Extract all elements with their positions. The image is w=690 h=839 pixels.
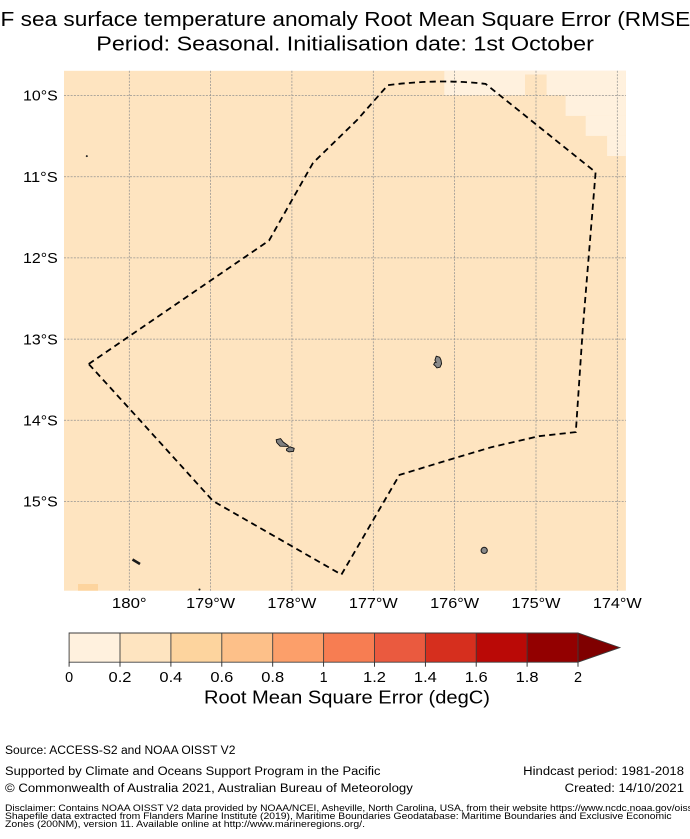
svg-text:© Commonwealth of Australia 20: © Commonwealth of Australia 2021, Austra… (5, 783, 413, 795)
svg-text:175°W: 175°W (512, 596, 561, 612)
svg-text:180°: 180° (112, 596, 147, 612)
svg-text:0.4: 0.4 (159, 670, 182, 686)
svg-text:1: 1 (320, 670, 328, 686)
svg-text:13°S: 13°S (23, 332, 58, 348)
svg-text:Zones (200NM), version 11. Ava: Zones (200NM), version 11. Available onl… (5, 819, 365, 829)
svg-text:11°S: 11°S (23, 170, 58, 186)
svg-text:178°W: 178°W (267, 596, 316, 612)
svg-text:Hindcast period: 1981-2018: Hindcast period: 1981-2018 (523, 766, 684, 778)
svg-text:Root Mean Square Error (degC): Root Mean Square Error (degC) (204, 687, 490, 708)
svg-text:15°S: 15°S (23, 495, 58, 511)
svg-text:0.6: 0.6 (210, 670, 233, 686)
svg-text:F sea surface temperature anom: F sea surface temperature anomaly Root M… (1, 8, 690, 31)
svg-text:1.4: 1.4 (414, 670, 437, 686)
svg-text:Created: 14/10/2021: Created: 14/10/2021 (565, 783, 684, 795)
svg-text:14°S: 14°S (23, 414, 58, 430)
svg-text:Source: ACCESS-S2 and NOAA OIS: Source: ACCESS-S2 and NOAA OISST V2 (5, 745, 235, 757)
svg-text:10°S: 10°S (23, 89, 58, 105)
svg-text:0.2: 0.2 (109, 670, 132, 686)
svg-text:Period: Seasonal. Initialisati: Period: Seasonal. Initialisation date: 1… (96, 32, 594, 55)
svg-text:1.8: 1.8 (516, 670, 539, 686)
svg-text:179°W: 179°W (186, 596, 235, 612)
svg-text:2: 2 (574, 670, 582, 686)
svg-text:0.8: 0.8 (261, 670, 284, 686)
svg-text:1.2: 1.2 (363, 670, 386, 686)
svg-text:174°W: 174°W (593, 596, 642, 612)
svg-text:1.6: 1.6 (465, 670, 488, 686)
svg-text:0: 0 (65, 670, 73, 686)
svg-text:Supported by Climate and Ocean: Supported by Climate and Oceans Support … (5, 766, 381, 778)
svg-text:12°S: 12°S (23, 251, 58, 267)
svg-text:177°W: 177°W (349, 596, 398, 612)
svg-text:176°W: 176°W (430, 596, 479, 612)
